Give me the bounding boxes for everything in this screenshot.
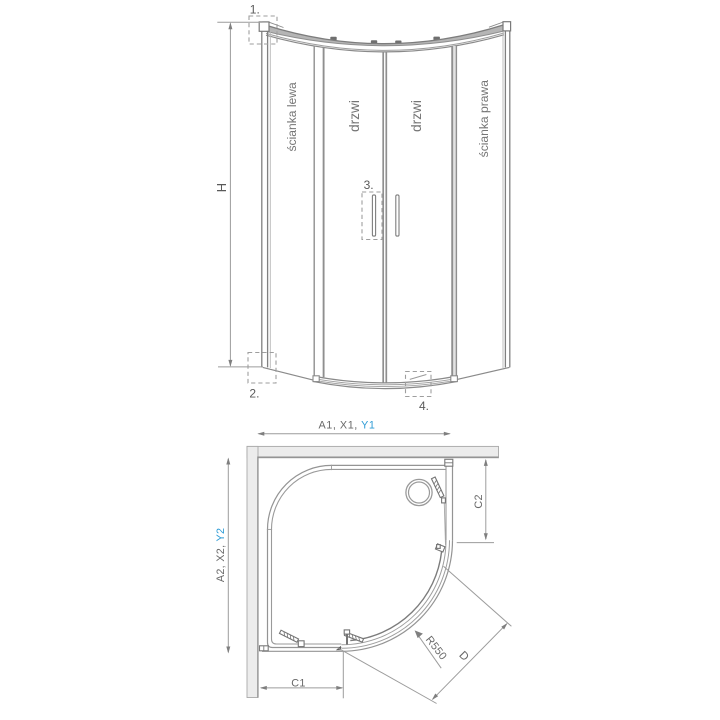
svg-text:drzwi: drzwi [347, 100, 362, 132]
svg-text:3.: 3. [364, 178, 374, 192]
svg-text:A1, X1, Y1: A1, X1, Y1 [319, 420, 376, 432]
svg-text:drzwi: drzwi [409, 100, 424, 132]
svg-text:A2, X2, Y2: A2, X2, Y2 [215, 528, 227, 582]
svg-text:D: D [456, 649, 471, 664]
svg-text:ścianka prawa: ścianka prawa [477, 80, 491, 158]
svg-text:ścianka lewa: ścianka lewa [285, 82, 299, 152]
svg-text:2.: 2. [249, 386, 259, 400]
svg-text:C2: C2 [473, 494, 485, 508]
svg-text:1.: 1. [250, 2, 260, 16]
svg-text:H: H [214, 183, 229, 192]
svg-text:4.: 4. [419, 399, 429, 413]
svg-text:C1: C1 [291, 677, 305, 689]
